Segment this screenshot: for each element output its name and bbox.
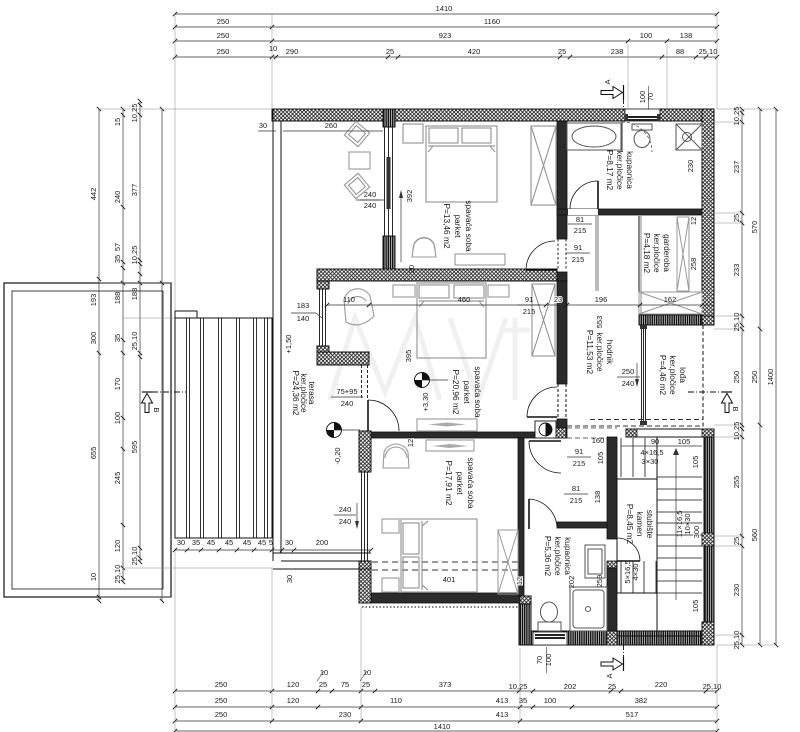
- svg-text:P=4,18 m2: P=4,18 m2: [642, 233, 652, 274]
- svg-text:138: 138: [593, 491, 602, 504]
- svg-text:kamen: kamen: [635, 512, 645, 537]
- svg-text:420: 420: [468, 47, 481, 56]
- svg-text:105: 105: [596, 452, 605, 465]
- svg-text:10,25: 10,25: [732, 422, 741, 441]
- svg-text:25,10: 25,10: [732, 631, 741, 650]
- svg-text:A: A: [603, 79, 612, 84]
- svg-text:245: 245: [113, 472, 122, 485]
- svg-text:ker.pločice: ker.pločice: [668, 355, 678, 395]
- svg-text:105: 105: [678, 437, 691, 446]
- svg-text:parket: parket: [453, 214, 463, 238]
- svg-text:100: 100: [544, 696, 557, 705]
- svg-text:1160: 1160: [484, 17, 500, 26]
- svg-text:105: 105: [691, 456, 700, 469]
- svg-text:570: 570: [750, 221, 759, 234]
- svg-text:100: 100: [640, 31, 653, 40]
- svg-text:120: 120: [287, 680, 300, 689]
- svg-text:193: 193: [89, 294, 98, 307]
- svg-text:4×30: 4×30: [631, 564, 640, 581]
- svg-text:70: 70: [535, 656, 544, 664]
- svg-text:260: 260: [325, 121, 338, 130]
- svg-text:188: 188: [113, 292, 122, 305]
- svg-text:25,10: 25,10: [130, 332, 139, 351]
- svg-text:35: 35: [519, 696, 527, 705]
- svg-text:30: 30: [177, 538, 185, 547]
- svg-text:25,10: 25,10: [732, 313, 741, 332]
- svg-text:5: 5: [269, 538, 273, 547]
- svg-text:202: 202: [564, 682, 577, 691]
- svg-text:25,10: 25,10: [113, 565, 122, 584]
- svg-text:10: 10: [269, 44, 277, 53]
- svg-text:110: 110: [390, 696, 402, 705]
- svg-text:170: 170: [113, 378, 122, 391]
- svg-text:45: 45: [207, 538, 215, 547]
- svg-text:+3,30: +3,30: [421, 393, 430, 412]
- svg-text:250: 250: [622, 367, 635, 376]
- svg-text:250: 250: [732, 371, 741, 384]
- svg-text:240: 240: [339, 505, 352, 514]
- svg-text:garderoba: garderoba: [662, 234, 672, 272]
- svg-text:12: 12: [515, 577, 524, 585]
- svg-text:215: 215: [574, 226, 587, 235]
- svg-text:25,10: 25,10: [699, 47, 718, 56]
- svg-text:25: 25: [732, 537, 741, 545]
- svg-text:4×16,5: 4×16,5: [640, 448, 663, 457]
- svg-text:392: 392: [405, 190, 414, 203]
- svg-text:P=4,46 m2: P=4,46 m2: [658, 355, 668, 396]
- svg-text:20: 20: [407, 265, 416, 273]
- svg-text:-0,20: -0,20: [333, 447, 342, 464]
- svg-text:10,25: 10,25: [732, 107, 741, 126]
- svg-text:75: 75: [341, 680, 349, 689]
- svg-text:25,10: 25,10: [130, 547, 139, 566]
- svg-text:3×30: 3×30: [642, 457, 659, 466]
- svg-text:560: 560: [750, 529, 759, 542]
- svg-text:75+95: 75+95: [336, 387, 357, 396]
- svg-text:250: 250: [215, 696, 228, 705]
- svg-text:10,25: 10,25: [509, 682, 528, 691]
- svg-text:25: 25: [362, 680, 370, 689]
- svg-text:70: 70: [646, 93, 655, 101]
- svg-text:183: 183: [297, 301, 310, 310]
- svg-text:10,25: 10,25: [130, 246, 139, 265]
- svg-text:35: 35: [192, 538, 200, 547]
- svg-text:230: 230: [686, 160, 695, 173]
- svg-text:30: 30: [259, 121, 267, 130]
- svg-text:655: 655: [89, 447, 98, 460]
- svg-text:ker.pločice: ker.pločice: [553, 536, 563, 576]
- svg-text:230: 230: [732, 584, 741, 597]
- svg-text:25: 25: [608, 682, 616, 691]
- svg-text:250: 250: [217, 31, 230, 40]
- svg-text:238: 238: [611, 47, 624, 56]
- svg-text:215: 215: [570, 496, 583, 505]
- svg-text:spavaća soba: spavaća soba: [464, 200, 474, 252]
- svg-text:923: 923: [439, 31, 452, 40]
- svg-text:10,25: 10,25: [130, 104, 139, 123]
- svg-text:25: 25: [558, 47, 566, 56]
- svg-text:300: 300: [692, 526, 701, 539]
- svg-text:81: 81: [576, 215, 584, 224]
- svg-text:45: 45: [258, 538, 266, 547]
- svg-text:215: 215: [572, 255, 585, 264]
- svg-text:240: 240: [339, 517, 352, 526]
- svg-text:10: 10: [89, 573, 98, 581]
- svg-text:15: 15: [113, 118, 122, 126]
- svg-text:25: 25: [386, 47, 394, 56]
- svg-text:P=11,53 m2: P=11,53 m2: [585, 330, 595, 375]
- svg-text:300: 300: [89, 332, 98, 345]
- svg-text:90: 90: [651, 437, 659, 446]
- svg-text:140: 140: [297, 314, 310, 323]
- svg-text:88: 88: [676, 47, 684, 56]
- svg-text:460: 460: [458, 295, 471, 304]
- svg-text:30: 30: [285, 575, 294, 583]
- svg-text:220: 220: [655, 680, 668, 689]
- svg-text:413: 413: [496, 710, 509, 719]
- svg-text:35: 35: [113, 334, 122, 342]
- svg-text:23: 23: [554, 295, 562, 304]
- svg-text:250: 250: [217, 47, 230, 56]
- svg-text:P=5,36 m2: P=5,36 m2: [543, 536, 553, 577]
- svg-text:ker.pločice: ker.pločice: [615, 150, 625, 190]
- svg-text:91: 91: [574, 243, 582, 252]
- svg-text:160: 160: [592, 436, 605, 445]
- svg-text:25,10: 25,10: [703, 682, 722, 691]
- svg-text:100: 100: [544, 654, 553, 667]
- svg-text:parket: parket: [455, 471, 465, 495]
- svg-text:258: 258: [689, 258, 698, 271]
- svg-text:250: 250: [750, 371, 759, 384]
- svg-text:202: 202: [567, 576, 576, 589]
- svg-text:ker.pločice: ker.pločice: [652, 233, 662, 273]
- svg-text:45: 45: [225, 538, 233, 547]
- svg-text:lođa: lođa: [678, 367, 688, 383]
- svg-text:196: 196: [595, 295, 608, 304]
- svg-text:255: 255: [732, 476, 741, 489]
- svg-text:230: 230: [339, 710, 352, 719]
- svg-text:215: 215: [523, 307, 536, 316]
- svg-text:45: 45: [243, 538, 251, 547]
- svg-text:1410: 1410: [434, 722, 451, 731]
- svg-text:spavaća soba: spavaća soba: [473, 366, 483, 418]
- svg-text:P=20,96 m2: P=20,96 m2: [451, 370, 461, 415]
- svg-text:240: 240: [364, 201, 377, 210]
- svg-text:spavaća soba: spavaća soba: [466, 457, 476, 509]
- svg-text:P=17,91 m2: P=17,91 m2: [444, 461, 454, 506]
- svg-text:240: 240: [113, 191, 122, 204]
- svg-text:138: 138: [680, 31, 693, 40]
- svg-text:442: 442: [89, 188, 98, 201]
- svg-text:kupaonica: kupaonica: [563, 537, 573, 575]
- svg-text:P=13,46 m2: P=13,46 m2: [442, 204, 452, 249]
- svg-text:250: 250: [215, 680, 228, 689]
- svg-text:B: B: [152, 407, 161, 412]
- svg-text:240: 240: [364, 190, 377, 199]
- svg-text:517: 517: [626, 710, 639, 719]
- svg-text:hodnik: hodnik: [605, 340, 615, 365]
- svg-text:250: 250: [217, 17, 230, 26]
- svg-text:57: 57: [113, 243, 122, 251]
- svg-text:P=8,45 m2: P=8,45 m2: [625, 504, 635, 545]
- svg-text:250: 250: [215, 710, 228, 719]
- svg-text:553: 553: [595, 316, 604, 329]
- svg-text:B: B: [731, 406, 740, 411]
- svg-text:215: 215: [573, 459, 586, 468]
- svg-text:100: 100: [113, 412, 122, 425]
- svg-text:35: 35: [113, 255, 122, 263]
- svg-text:395: 395: [404, 350, 413, 363]
- svg-text:105: 105: [691, 600, 700, 613]
- svg-text:290: 290: [286, 47, 299, 56]
- svg-text:377: 377: [130, 184, 139, 197]
- svg-text:P=24,36 m2: P=24,36 m2: [291, 371, 301, 416]
- svg-text:237: 237: [732, 161, 741, 174]
- svg-text:120: 120: [287, 696, 300, 705]
- svg-text:401: 401: [443, 575, 456, 584]
- svg-text:81: 81: [572, 484, 580, 493]
- svg-text:25: 25: [319, 680, 327, 689]
- svg-text:200: 200: [316, 538, 329, 547]
- svg-text:188: 188: [130, 288, 139, 301]
- svg-text:kupaonica: kupaonica: [625, 151, 635, 189]
- svg-text:233: 233: [732, 264, 741, 277]
- svg-text:1410: 1410: [436, 4, 453, 13]
- svg-text:12: 12: [406, 439, 415, 447]
- svg-text:259: 259: [595, 575, 604, 588]
- svg-text:12: 12: [689, 217, 698, 225]
- svg-text:10×30: 10×30: [683, 513, 692, 534]
- svg-text:1400: 1400: [766, 369, 775, 386]
- svg-text:parket: parket: [462, 380, 472, 404]
- svg-text:A: A: [605, 673, 614, 678]
- svg-text:120: 120: [113, 540, 122, 553]
- svg-text:413: 413: [496, 696, 509, 705]
- svg-text:162: 162: [664, 295, 677, 304]
- svg-text:30: 30: [285, 538, 293, 547]
- svg-text:110: 110: [343, 295, 355, 304]
- svg-text:ker.pločice: ker.pločice: [595, 332, 605, 372]
- svg-text:382: 382: [635, 696, 648, 705]
- svg-text:+1,50: +1,50: [284, 335, 293, 354]
- svg-text:595: 595: [130, 441, 139, 454]
- svg-text:240: 240: [622, 379, 635, 388]
- svg-text:91: 91: [575, 447, 583, 456]
- svg-text:91: 91: [525, 295, 533, 304]
- svg-text:P=8,17 m2: P=8,17 m2: [605, 150, 615, 191]
- svg-text:240: 240: [341, 399, 354, 408]
- svg-text:373: 373: [439, 680, 452, 689]
- svg-text:25: 25: [732, 214, 741, 222]
- svg-text:stubište: stubište: [645, 510, 655, 539]
